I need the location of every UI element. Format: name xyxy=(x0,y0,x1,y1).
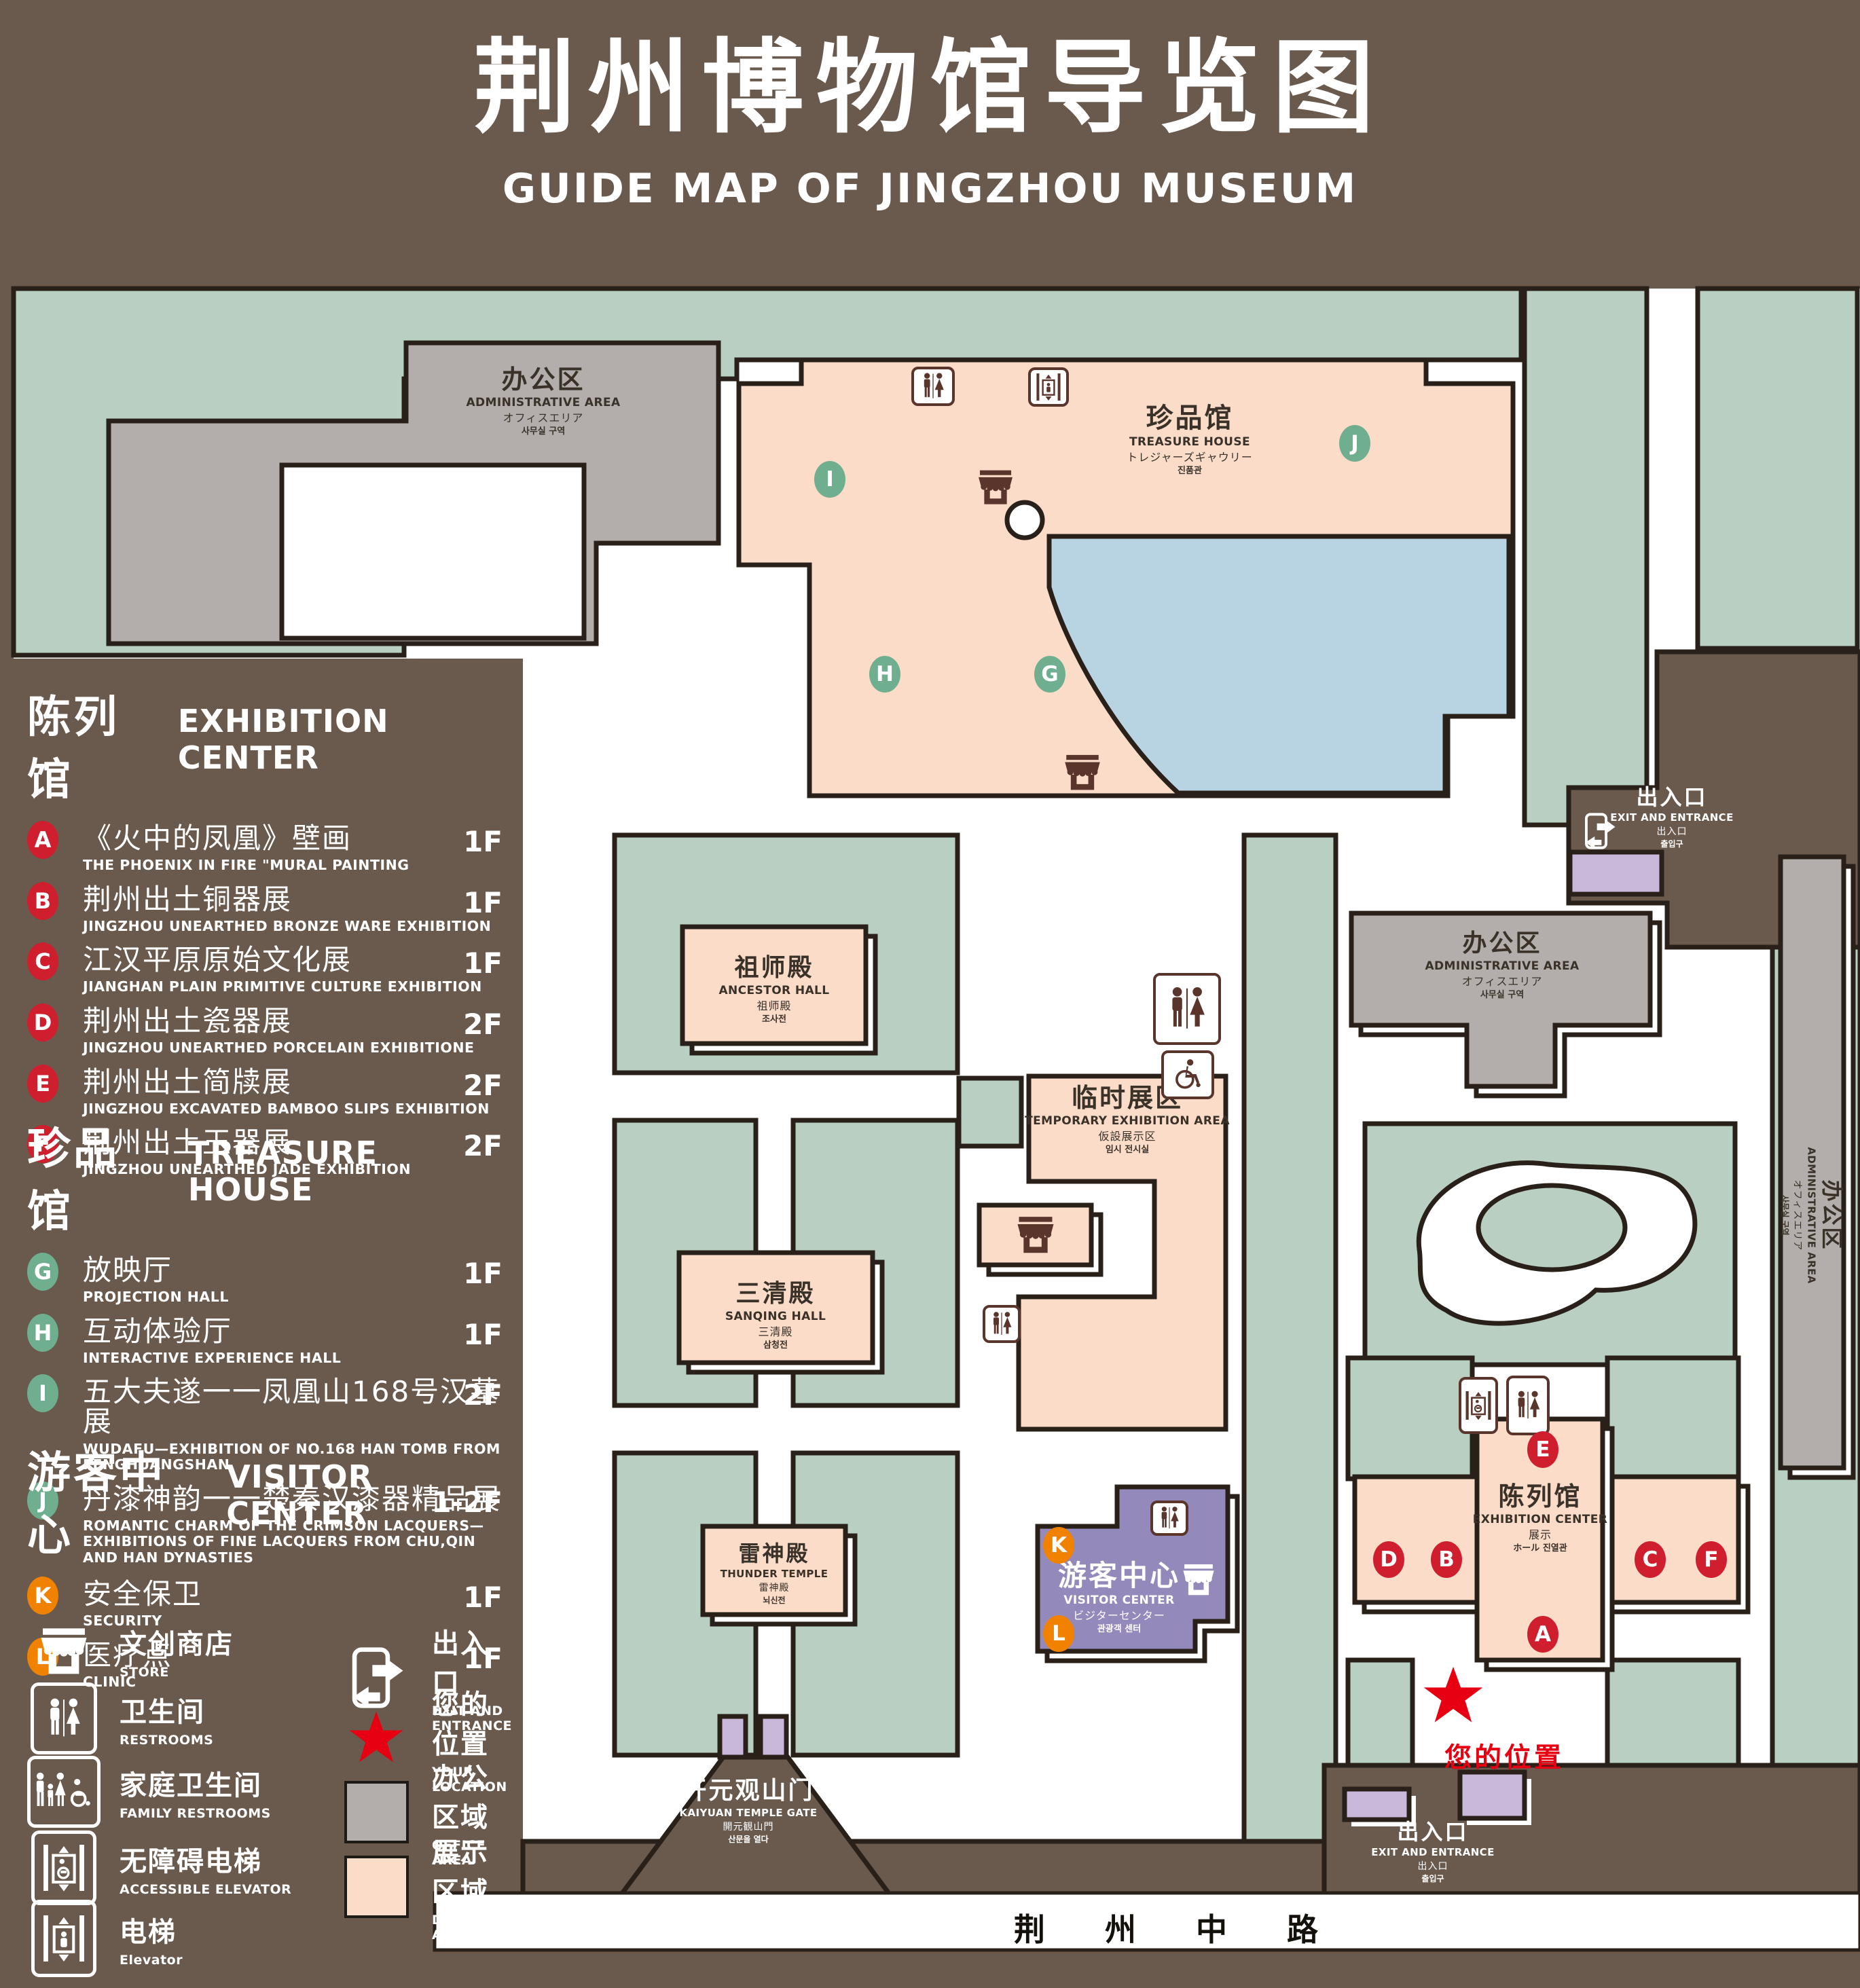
restroom-icon xyxy=(1150,1501,1188,1536)
map-marker-c: C xyxy=(1635,1541,1666,1578)
label-admin-far-east: 办公区 ADMINISTRATIVE AREA オフィスエリア 사무실 구역 xyxy=(1781,1147,1843,1283)
label-southeast-exit: 出入口 EXIT AND ENTRANCE 出入口 출입구 xyxy=(1371,1821,1494,1883)
legend-symbol-restrooms: 卫生间 RESTROOMS xyxy=(27,1682,213,1754)
section-header: 珍品馆 TREASURE HOUSE xyxy=(27,1114,509,1239)
legend-symbol-elevator: 电梯 Elevator xyxy=(27,1900,183,1977)
legend-item-e: E 荆州出土简牍展 JINGZHOU EXCAVATED BAMBOO SLIP… xyxy=(27,1067,509,1118)
item-floor: 1F xyxy=(463,1257,503,1290)
label-admin-northwest: 办公区 ADMINISTRATIVE AREA オフィスエリア 사무실 구역 xyxy=(466,367,620,436)
item-en: JINGZHOU UNEARTHED PORCELAIN EXHIBITIONE xyxy=(83,1040,509,1056)
badge-d: D xyxy=(27,1004,58,1042)
label-treasure-house: 珍品馆 TREASURE HOUSE トレジャーズギャウリー 진품관 xyxy=(1127,405,1252,475)
section-title-zh: 陈列馆 xyxy=(27,682,153,807)
label-ancestor-hall: 祖师殿 ANCESTOR HALL 祖师殿 조사전 xyxy=(718,956,829,1024)
map-marker-k: K xyxy=(1043,1527,1074,1564)
item-zh: 荆州出土铜器展 xyxy=(83,885,509,915)
page-title: 荆州博物馆导览图 xyxy=(0,5,1860,153)
item-en: THE PHOENIX IN FIRE "MURAL PAINTING xyxy=(83,858,509,874)
item-zh: 荆州出土瓷器展 xyxy=(83,1006,509,1036)
exit-icon xyxy=(1580,812,1619,850)
label-kaiyuan-gate: 开元观山门 KAIYUAN TEMPLE GATE 開元観山門 산문을 열다 xyxy=(679,1779,817,1843)
grounds-northeast-strip xyxy=(1525,289,1647,825)
legend-symbol-accessible-elevator: 无障碍电梯 ACCESSIBLE ELEVATOR xyxy=(27,1830,291,1905)
item-floor: 2F xyxy=(463,1378,503,1412)
badge-b: B xyxy=(27,882,58,920)
legend-item-a: A 《火中的凤凰》壁画 THE PHOENIX IN FIRE "MURAL P… xyxy=(27,824,509,874)
item-floor: 1F xyxy=(463,1318,503,1351)
item-floor: 1F xyxy=(463,825,503,858)
museum-guide-map-poster: 荆州博物馆导览图 GUIDE MAP OF JINGZHOU MUSEUM 陈列… xyxy=(0,0,1860,1988)
map-marker-j: J xyxy=(1339,425,1370,462)
family-restroom-icon xyxy=(27,1756,101,1828)
item-zh: 五大夫遂一一凤凰山168号汉墓展 xyxy=(83,1377,509,1437)
display-area-swatch xyxy=(344,1856,409,1918)
item-en: PROJECTION HALL xyxy=(83,1289,509,1306)
store-icon xyxy=(35,1621,93,1680)
road-name: 荆 州 中 路 xyxy=(1014,1905,1343,1950)
badge-k: K xyxy=(27,1577,58,1615)
item-zh: 安全保卫 xyxy=(83,1579,509,1609)
legend-item-h: H 互动体验厅 INTERACTIVE EXPERIENCE HALL 1F xyxy=(27,1317,509,1367)
map-marker-d: D xyxy=(1373,1541,1404,1578)
item-en: JIANGHAN PLAIN PRIMITIVE CULTURE EXHIBIT… xyxy=(83,979,509,995)
store-icon xyxy=(971,465,1020,509)
accessible-elevator-icon xyxy=(31,1830,96,1905)
map-marker-f: F xyxy=(1696,1541,1727,1578)
restroom-icon xyxy=(911,367,955,406)
item-en: JINGZHOU UNEARTHED BRONZE WARE EXHIBITIO… xyxy=(83,919,509,935)
map-marker-g: G xyxy=(1034,656,1065,693)
legend-symbol-family-restrooms: 家庭卫生间 FAMILY RESTROOMS xyxy=(27,1756,271,1828)
garden-island xyxy=(1478,1185,1625,1270)
badge-e: E xyxy=(27,1065,58,1103)
section-title-en: EXHIBITION CENTER xyxy=(178,703,509,776)
poster-header: 荆州博物馆导览图 GUIDE MAP OF JINGZHOU MUSEUM xyxy=(0,0,1860,213)
map-marker-h: H xyxy=(869,656,900,693)
section-header: 陈列馆 EXHIBITION CENTER xyxy=(27,682,509,807)
gate-pillar-east xyxy=(761,1716,786,1757)
store-icon xyxy=(1009,1211,1062,1257)
store-icon xyxy=(1057,750,1108,794)
map-marker-a: A xyxy=(1527,1616,1558,1653)
grounds-exhibition-nw xyxy=(1348,1358,1472,1479)
section-title-zh: 珍品馆 xyxy=(27,1114,164,1239)
section-header: 游客中心 VISITOR CENTER xyxy=(27,1438,509,1563)
admin-courtyard xyxy=(282,465,584,638)
map-marker-l: L xyxy=(1043,1615,1074,1652)
se-purple-building-2 xyxy=(1460,1772,1525,1818)
item-floor: 1F xyxy=(463,946,503,980)
label-northeast-exit: 出入口 EXIT AND ENTRANCE 出入口 출입구 xyxy=(1610,786,1733,848)
item-floor: 2F xyxy=(463,1069,503,1102)
restroom-icon xyxy=(31,1682,97,1754)
map-marker-i: I xyxy=(814,461,845,498)
your-location-label: 您的位置 xyxy=(1444,1735,1564,1775)
restroom-icon xyxy=(1153,973,1221,1045)
item-zh: 《火中的凤凰》壁画 xyxy=(83,824,509,853)
item-zh: 放映厅 xyxy=(83,1255,509,1285)
item-floor: 1F xyxy=(463,1581,503,1614)
legend-item-c: C 江汉平原原始文化展 JIANGHAN PLAIN PRIMITIVE CUL… xyxy=(27,945,509,995)
legend-symbol-display-area: 展示区域 DISPLAY AREA xyxy=(340,1830,509,1943)
badge-i: I xyxy=(27,1374,58,1412)
elevator-icon xyxy=(1028,367,1069,407)
legend-item-g: G 放映厅 PROJECTION HALL 1F xyxy=(27,1255,509,1306)
accessible-elevator-icon xyxy=(1459,1377,1498,1434)
item-floor: 1F xyxy=(463,886,503,919)
gate-pillar-west xyxy=(720,1716,746,1757)
store-icon xyxy=(1177,1560,1220,1599)
accessible-restroom-icon xyxy=(1161,1050,1214,1099)
map-marker-e: E xyxy=(1527,1431,1558,1468)
label-exhibition-center: 陈列馆 EXHIBITION CENTER 展示 ホール 진열관 xyxy=(1473,1484,1608,1553)
badge-a: A xyxy=(27,821,58,859)
badge-c: C xyxy=(27,942,58,980)
badge-h: H xyxy=(27,1314,58,1352)
label-admin-east: 办公区 ADMINISTRATIVE AREA オフィスエリア 사무실 구역 xyxy=(1425,932,1579,999)
restroom-icon xyxy=(1506,1376,1550,1435)
badge-g: G xyxy=(27,1253,58,1291)
legend-panel: 陈列馆 EXHIBITION CENTER A 《火中的凤凰》壁画 THE PH… xyxy=(27,674,509,1985)
legend-item-b: B 荆州出土铜器展 JINGZHOU UNEARTHED BRONZE WARE… xyxy=(27,885,509,935)
restroom-icon xyxy=(983,1305,1021,1343)
label-sanqing-hall: 三清殿 SANQING HALL 三清殿 삼청전 xyxy=(725,1282,826,1350)
section-title-en: VISITOR CENTER xyxy=(226,1458,509,1532)
legend-item-d: D 荆州出土瓷器展 JINGZHOU UNEARTHED PORCELAIN E… xyxy=(27,1006,509,1056)
item-zh: 江汉平原原始文化展 xyxy=(83,945,509,975)
section-title-en: TREASURE HOUSE xyxy=(188,1135,509,1208)
section-title-zh: 游客中心 xyxy=(27,1438,202,1563)
location-star-icon xyxy=(1421,1665,1485,1729)
item-zh: 互动体验厅 xyxy=(83,1317,509,1346)
grounds-northeast-corner xyxy=(1698,289,1857,648)
grounds-temporary-patch xyxy=(959,1078,1021,1146)
item-floor: 2F xyxy=(463,1008,503,1041)
page-subtitle: GUIDE MAP OF JINGZHOU MUSEUM xyxy=(0,165,1860,213)
legend-section-exhibition-center: 陈列馆 EXHIBITION CENTER A 《火中的凤凰》壁画 THE PH… xyxy=(27,682,509,1189)
elevator-icon xyxy=(31,1900,96,1977)
item-en: INTERACTIVE EXPERIENCE HALL xyxy=(83,1350,509,1367)
label-visitor-center: 游客中心 VISITOR CENTER ビジターセンター 관광객 센터 xyxy=(1058,1562,1180,1634)
grounds-exhibition-ne xyxy=(1607,1358,1738,1479)
northeast-purple-building xyxy=(1570,852,1662,894)
grounds-center-column xyxy=(1244,835,1336,1841)
legend-symbol-store: 文创商店 STORE xyxy=(27,1621,234,1680)
se-purple-building-1 xyxy=(1345,1789,1409,1820)
label-thunder-temple: 雷神殿 THUNDER TEMPLE 雷神殿 뇌신전 xyxy=(721,1543,828,1604)
map-marker-b: B xyxy=(1431,1541,1462,1578)
item-zh: 荆州出土简牍展 xyxy=(83,1067,509,1097)
